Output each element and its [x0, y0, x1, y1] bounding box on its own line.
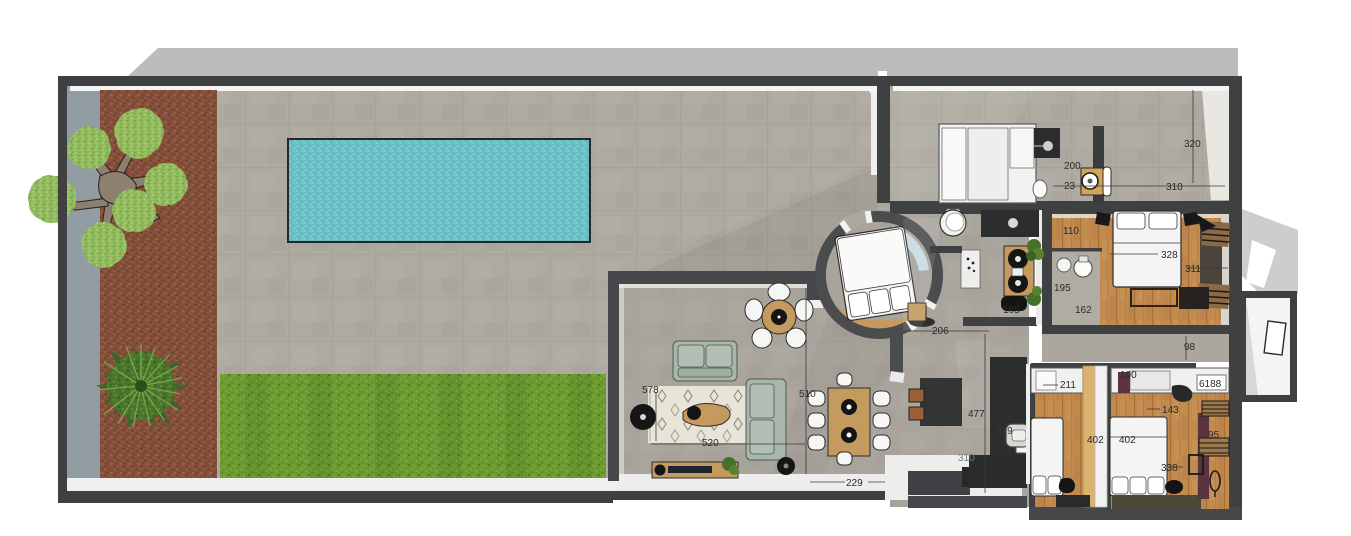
svg-text:311: 311 [1185, 264, 1201, 275]
svg-text:310: 310 [958, 453, 975, 464]
svg-text:310: 310 [1166, 182, 1183, 193]
svg-text:229: 229 [846, 478, 863, 489]
svg-text:23: 23 [1064, 181, 1076, 192]
svg-text:206: 206 [932, 326, 949, 337]
svg-text:320: 320 [1184, 139, 1201, 150]
svg-text:162: 162 [1075, 305, 1092, 316]
svg-text:402: 402 [1119, 435, 1136, 446]
svg-text:328: 328 [1161, 250, 1178, 261]
svg-text:165: 165 [1003, 305, 1020, 316]
svg-text:578: 578 [642, 385, 659, 396]
svg-text:510: 510 [799, 389, 816, 400]
svg-text:477: 477 [968, 409, 985, 420]
svg-text:338: 338 [1161, 463, 1178, 474]
svg-text:95: 95 [1208, 430, 1220, 441]
svg-text:195: 195 [1054, 283, 1071, 294]
svg-text:402: 402 [1087, 435, 1104, 446]
svg-text:379: 379 [996, 426, 1013, 437]
svg-text:100: 100 [1120, 370, 1137, 381]
svg-text:6188: 6188 [1199, 379, 1222, 390]
svg-text:520: 520 [702, 438, 719, 449]
svg-text:143: 143 [1162, 405, 1179, 416]
svg-text:110: 110 [1063, 226, 1079, 237]
svg-text:200: 200 [1064, 161, 1081, 172]
svg-text:211: 211 [1060, 380, 1076, 391]
